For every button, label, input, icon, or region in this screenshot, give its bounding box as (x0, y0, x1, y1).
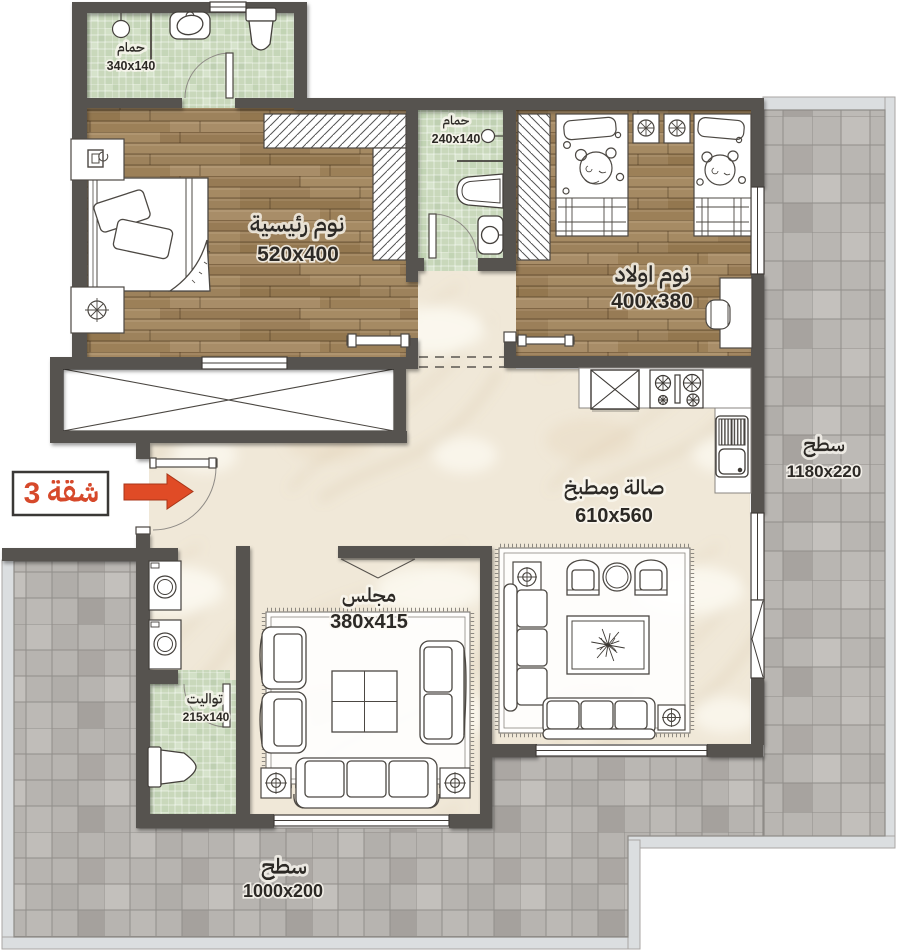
svg-text:3: 3 (24, 477, 41, 510)
svg-text:240x140: 240x140 (432, 132, 481, 146)
svg-text:380x415: 380x415 (330, 611, 408, 633)
svg-text:520x400: 520x400 (257, 243, 339, 266)
svg-text:1000x200: 1000x200 (243, 881, 323, 901)
svg-text:400x380: 400x380 (611, 290, 693, 313)
svg-text:215x140: 215x140 (183, 710, 230, 724)
svg-text:610x560: 610x560 (575, 505, 653, 527)
svg-text:1180x220: 1180x220 (787, 462, 862, 481)
svg-text:340x140: 340x140 (107, 59, 156, 73)
